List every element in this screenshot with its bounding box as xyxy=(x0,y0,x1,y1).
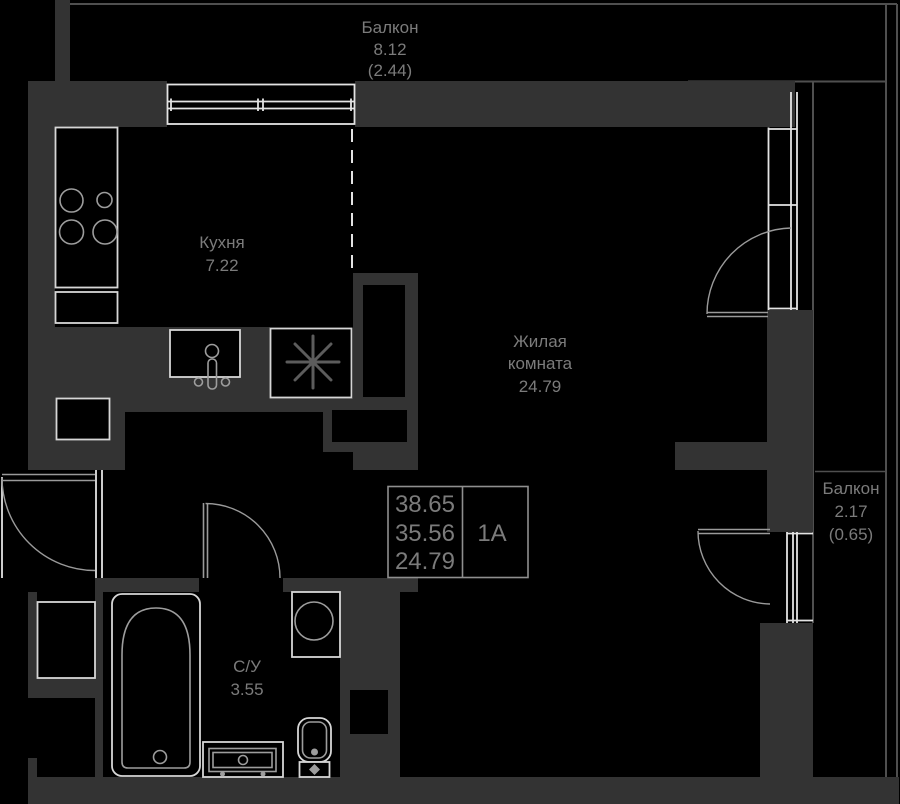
living-area-total-value: 35.56 xyxy=(395,520,455,547)
wall-bath-north-right xyxy=(283,578,418,592)
wall-bath-east xyxy=(340,592,400,778)
wall-living-south xyxy=(675,442,767,470)
entry-jamb-lines xyxy=(96,470,102,578)
wall-closet-bottom xyxy=(37,678,95,698)
balcony-door-glazing xyxy=(787,532,797,623)
living-glazing-ticks xyxy=(768,129,797,309)
entry-door-arc xyxy=(2,478,95,571)
upper-balcony-door-arc xyxy=(707,228,791,314)
stove-counter-icon xyxy=(56,128,118,288)
vanity-knob-icon xyxy=(220,772,225,777)
wall-left-stub-bottom xyxy=(28,758,37,777)
balcony-top-area: 8.12 xyxy=(373,40,406,59)
total-area-value: 38.65 xyxy=(395,491,455,518)
bathroom-area: 3.55 xyxy=(230,680,263,699)
hall-niche xyxy=(332,410,407,442)
lower-balcony-door-leaf xyxy=(698,530,770,534)
kitchen-sink-icon xyxy=(170,330,240,377)
wall-closet-right xyxy=(95,578,103,778)
kitchen-window xyxy=(168,85,355,125)
snowflake-icon xyxy=(287,336,339,388)
lower-balcony-door-arc xyxy=(698,531,770,604)
balcony-top-label: Балкон xyxy=(361,18,418,37)
shaft-niche-bath xyxy=(350,690,388,734)
vanity-knob-icon xyxy=(261,772,266,777)
toilet-button-icon xyxy=(311,749,318,756)
balcony-right-label: Балкон xyxy=(822,479,879,498)
entry-door-leaf xyxy=(2,475,95,481)
bath-door-arc xyxy=(206,504,281,579)
bath-door-leaf xyxy=(204,503,208,578)
unit-label: 1А xyxy=(477,520,506,547)
kitchen-area: 7.22 xyxy=(205,256,238,275)
counter-icon xyxy=(56,292,118,323)
kitchen-label: Кухня xyxy=(199,233,245,252)
balcony-right-area: 2.17 xyxy=(834,502,867,521)
bathroom-label: С/У xyxy=(233,657,261,676)
wall-top-right xyxy=(355,81,795,127)
bathtub-icon xyxy=(112,594,200,776)
wall-bottom xyxy=(28,777,899,804)
floor-plan-canvas: 38.65 35.56 24.79 1А Балкон 8.12 (2.44) … xyxy=(0,0,900,804)
floor-plan: 38.65 35.56 24.79 1А Балкон 8.12 (2.44) … xyxy=(0,0,900,804)
living-room-label-line1: Жилая xyxy=(513,332,567,351)
hall-fixtures xyxy=(38,602,96,678)
living-room-label-line2: комната xyxy=(508,354,573,373)
appliance-icon xyxy=(57,399,110,440)
bathroom-fixtures xyxy=(112,592,340,777)
wall-top-left xyxy=(28,81,167,127)
shaft-niche-kitchen xyxy=(363,285,405,397)
living-room-area: 24.79 xyxy=(519,377,562,396)
balcony-door-glazing-ticks xyxy=(787,534,813,621)
balcony-right-reduced-area: (0.65) xyxy=(829,525,873,544)
wall-right-pier xyxy=(767,310,813,532)
balcony-top-reduced-area: (2.44) xyxy=(368,61,412,80)
room-area-value: 24.79 xyxy=(395,548,455,575)
closet-icon xyxy=(38,602,96,678)
wall-bath-north-left xyxy=(103,578,199,592)
info-box: 38.65 35.56 24.79 1А xyxy=(388,487,528,578)
wall-top-left-stub xyxy=(55,0,70,82)
upper-balcony-door-leaf xyxy=(707,313,768,317)
wall-lower-right-block xyxy=(760,623,813,778)
wall-closet-left xyxy=(28,592,37,698)
